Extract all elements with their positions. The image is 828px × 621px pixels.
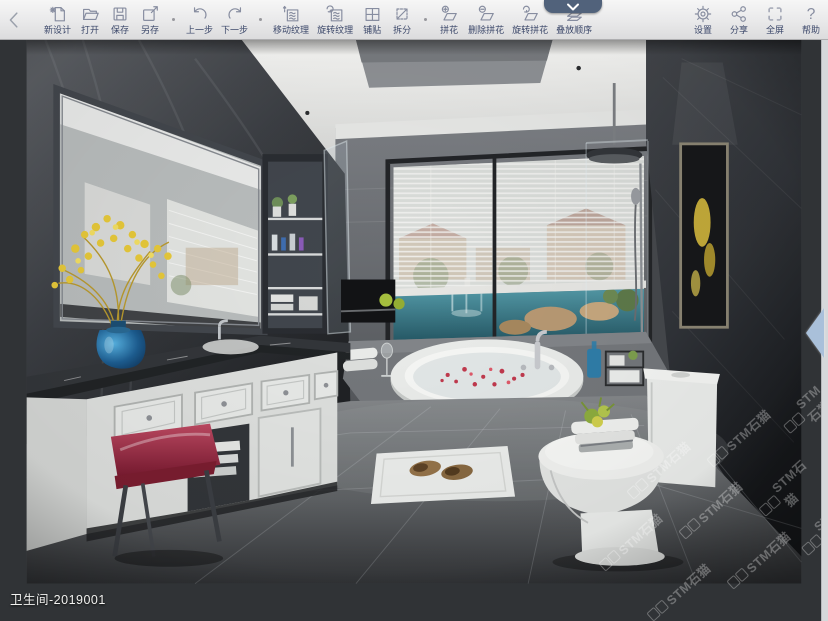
toolbar-button-rotate-texture[interactable]: 旋转纹理 [313, 1, 357, 39]
vignette [27, 40, 802, 584]
panel-pull-tab[interactable] [544, 0, 602, 13]
fullscreen-icon [765, 4, 785, 24]
toolbar-button-label: 旋转拼花 [512, 25, 548, 35]
toolbar-button-fullscreen[interactable]: 全屏 [760, 1, 790, 39]
toolbar-button-help[interactable]: ? 帮助 [796, 1, 826, 39]
toolbar-button-label: 打开 [81, 25, 99, 35]
toolbar-button-label: 删除拼花 [468, 25, 504, 35]
toolbar-button-split[interactable]: 拆分 [387, 1, 417, 39]
chevron-down-icon [563, 2, 583, 12]
move-texture-icon [281, 4, 301, 24]
delete-mosaic-icon [476, 4, 496, 24]
toolbar-button-redo[interactable]: 下一步 [217, 1, 252, 39]
floppy-disk-icon [110, 4, 130, 24]
bathroom-render [0, 40, 828, 621]
undo-arrow-icon [190, 4, 210, 24]
open-folder-icon [80, 4, 100, 24]
panel-expand-handle[interactable] [806, 308, 824, 358]
gear-icon [693, 4, 713, 24]
project-label: 卫生间-2019001 [10, 589, 106, 608]
toolbar-button-label: 拆分 [393, 25, 411, 35]
toolbar-button-settings[interactable]: 设置 [688, 1, 718, 39]
back-button[interactable] [2, 1, 28, 39]
chevron-left-icon [4, 9, 26, 31]
toolbar-separator-dot [424, 18, 427, 21]
add-mosaic-icon [439, 4, 459, 24]
toolbar-button-move-texture[interactable]: 移动纹理 [269, 1, 313, 39]
toolbar-button-save-as[interactable]: 另存 [135, 1, 165, 39]
toolbar-button-label: 分享 [730, 25, 748, 35]
toolbar-button-label: 叠放顺序 [556, 25, 592, 35]
toolbar-button-delete-mosaic[interactable]: 删除拼花 [464, 1, 508, 39]
toolbar-separator-dot [259, 18, 262, 21]
new-file-icon [48, 4, 68, 24]
toolbar-button-label: 下一步 [221, 25, 248, 35]
app-window: 新设计 打开 保存 另存 上一步 下一步 移动纹理 [0, 0, 828, 621]
save-as-icon [140, 4, 160, 24]
rotate-mosaic-icon [520, 4, 540, 24]
split-icon [392, 4, 412, 24]
toolbar-button-undo[interactable]: 上一步 [182, 1, 217, 39]
main-toolbar: 新设计 打开 保存 另存 上一步 下一步 移动纹理 [0, 0, 828, 40]
toolbar-button-label: 设置 [694, 25, 712, 35]
toolbar-button-label: 新设计 [44, 25, 71, 35]
toolbar-button-label: 拼花 [440, 25, 458, 35]
rotate-texture-icon [325, 4, 345, 24]
toolbar-button-label: 铺贴 [363, 25, 381, 35]
toolbar-button-label: 保存 [111, 25, 129, 35]
toolbar-button-share[interactable]: 分享 [724, 1, 754, 39]
toolbar-right-group: 设置 分享 全屏 ? 帮助 [688, 1, 826, 39]
question-icon: ? [801, 4, 821, 24]
toolbar-button-label: 移动纹理 [273, 25, 309, 35]
toolbar-button-label: 帮助 [802, 25, 820, 35]
toolbar-button-open[interactable]: 打开 [75, 1, 105, 39]
toolbar-button-save[interactable]: 保存 [105, 1, 135, 39]
toolbar-button-label: 旋转纹理 [317, 25, 353, 35]
toolbar-separator-dot [172, 18, 175, 21]
design-canvas[interactable]: STM石猫 STM石猫 STM石猫 STM石猫 STM石猫 STM石猫 STM石… [0, 40, 828, 621]
toolbar-button-new-design[interactable]: 新设计 [40, 1, 75, 39]
svg-text:?: ? [807, 6, 816, 23]
toolbar-button-label: 另存 [141, 25, 159, 35]
share-icon [729, 4, 749, 24]
toolbar-button-label: 全屏 [766, 25, 784, 35]
toolbar-button-label: 上一步 [186, 25, 213, 35]
tile-grid-icon [362, 4, 382, 24]
toolbar-button-paving[interactable]: 铺贴 [357, 1, 387, 39]
toolbar-button-mosaic[interactable]: 拼花 [434, 1, 464, 39]
redo-arrow-icon [225, 4, 245, 24]
